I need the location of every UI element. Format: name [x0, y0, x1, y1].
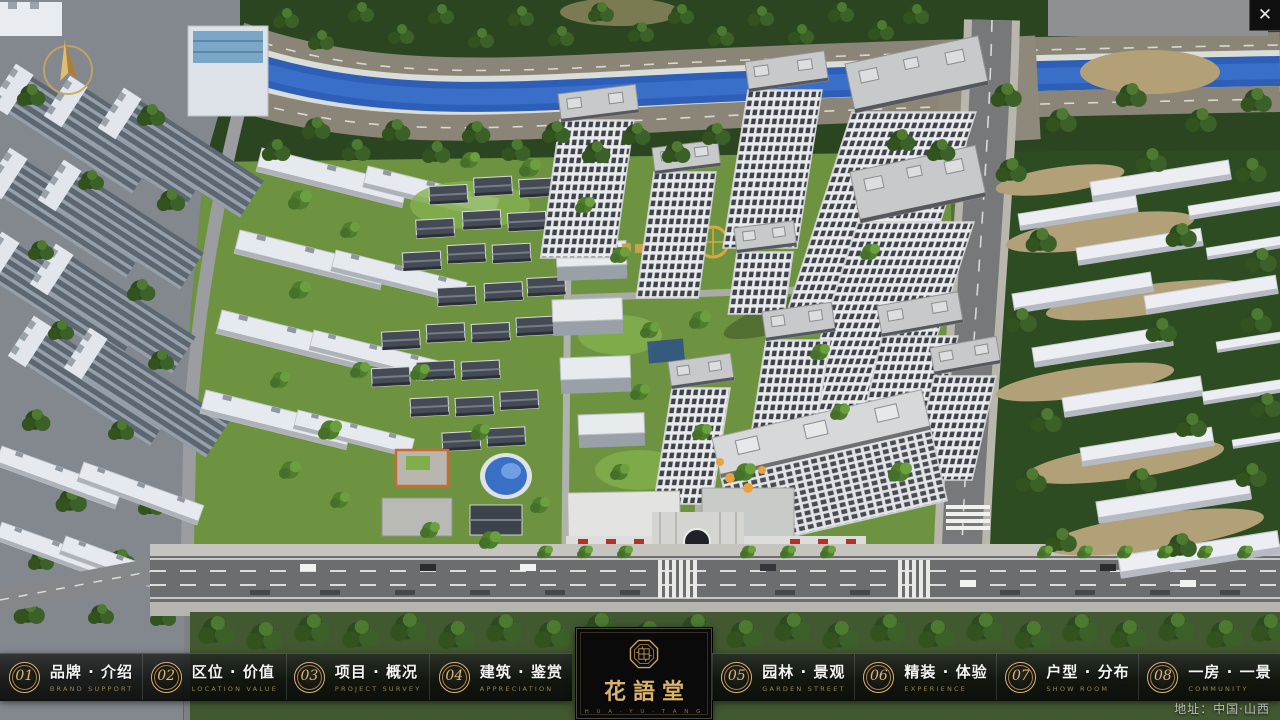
number-badge-icon: 07: [1005, 662, 1036, 693]
nav-item-interior[interactable]: 06 精装 · 体验 EXPERIENCE: [855, 654, 997, 700]
nav-item-brand[interactable]: 01 品牌 · 介绍 BRAND SUPPORT: [0, 654, 143, 700]
nav-item-garden[interactable]: 05 园林 · 景观 GARDEN STREET: [712, 654, 855, 700]
compass-icon: [36, 30, 100, 102]
logo-button[interactable]: 花語堂 H U A · Y U · T A N G: [576, 628, 712, 719]
presentation-window: ✕ 01 品牌 · 介绍 BRAND SUPPORT 02 区位 · 价值 LO…: [0, 0, 1280, 720]
number-badge-icon: 04: [439, 662, 470, 693]
number-badge-icon: 06: [863, 662, 894, 693]
number-badge-icon: 08: [1147, 662, 1178, 693]
logo-caption: H U A · Y U · T A N G: [585, 709, 704, 715]
nav-item-location[interactable]: 02 区位 · 价值 LOCATION VALUE: [143, 654, 286, 700]
number-badge-icon: 03: [294, 662, 325, 693]
nav-item-views[interactable]: 08 一房 · 一景 COMMUNITY: [1139, 654, 1280, 700]
nav-subtitle: COMMUNITY: [1188, 685, 1248, 693]
nav-subtitle: BRAND SUPPORT: [50, 685, 134, 693]
bottom-nav-left: 01 品牌 · 介绍 BRAND SUPPORT 02 区位 · 价值 LOCA…: [0, 653, 572, 701]
nav-item-floorplan[interactable]: 07 户型 · 分布 SHOW ROOM: [997, 654, 1139, 700]
address-label: 地址：中国·山西: [1174, 700, 1270, 717]
nav-title: 园林 · 景观: [762, 661, 845, 682]
close-icon: ✕: [1258, 7, 1272, 24]
close-button[interactable]: ✕: [1249, 0, 1280, 31]
nav-item-project[interactable]: 03 项目 · 概况 PROJECT SURVEY: [287, 654, 430, 700]
main-road: [150, 544, 1280, 616]
nav-title: 精装 · 体验: [904, 661, 987, 682]
seal-icon: [625, 635, 663, 673]
nav-subtitle: LOCATION VALUE: [192, 685, 278, 693]
nav-subtitle: PROJECT SURVEY: [335, 685, 422, 693]
nav-title: 一房 · 一景: [1188, 661, 1271, 682]
masterplan-render: [0, 0, 1280, 720]
nav-title: 品牌 · 介绍: [50, 661, 133, 682]
bottom-nav-right: 05 园林 · 景观 GARDEN STREET 06 精装 · 体验 EXPE…: [712, 653, 1280, 701]
nav-title: 项目 · 概况: [335, 661, 418, 682]
nav-subtitle: GARDEN STREET: [762, 685, 845, 693]
nav-title: 区位 · 价值: [192, 661, 275, 682]
nav-item-architecture[interactable]: 04 建筑 · 鉴赏 APPRECIATION: [430, 654, 572, 700]
nav-subtitle: EXPERIENCE: [904, 685, 967, 693]
number-badge-icon: 02: [151, 662, 182, 693]
nav-subtitle: APPRECIATION: [480, 685, 554, 693]
number-badge-icon: 05: [721, 662, 752, 693]
nav-subtitle: SHOW ROOM: [1046, 685, 1109, 693]
nav-title: 户型 · 分布: [1046, 661, 1129, 682]
number-badge-icon: 01: [9, 662, 40, 693]
logo-name: 花語堂: [597, 674, 691, 706]
nav-title: 建筑 · 鉴赏: [480, 661, 563, 682]
